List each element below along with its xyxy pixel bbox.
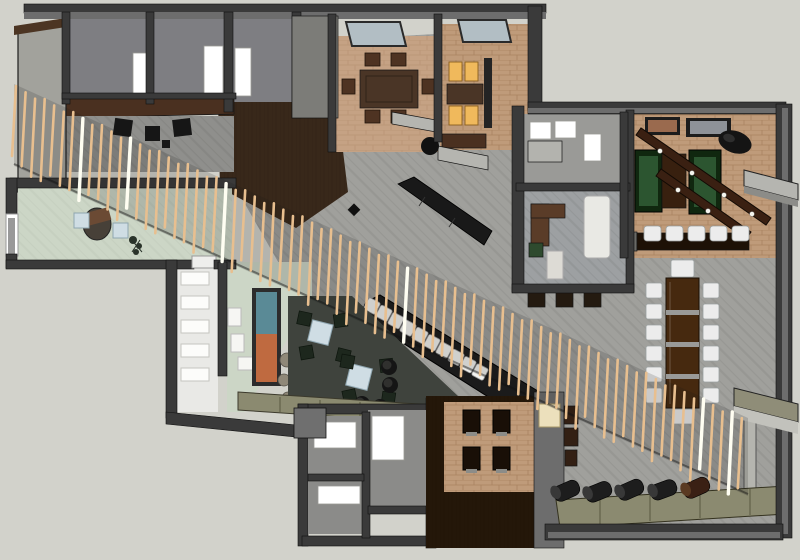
restroom-wall bbox=[308, 474, 364, 481]
communal-chair bbox=[646, 283, 662, 298]
white-table bbox=[547, 251, 563, 279]
blue-table bbox=[113, 223, 128, 238]
serving-band bbox=[442, 134, 486, 148]
communal-chair bbox=[646, 325, 662, 340]
wall bbox=[528, 6, 542, 110]
wall bbox=[328, 14, 336, 152]
wall bbox=[218, 262, 227, 376]
small-table bbox=[162, 140, 170, 148]
artwork-top bbox=[256, 292, 277, 334]
entry-door-leaf bbox=[8, 218, 15, 254]
floorplan-screenshot bbox=[0, 0, 800, 560]
stair-corridor bbox=[177, 266, 218, 412]
lounge-table bbox=[308, 320, 333, 345]
fixture bbox=[372, 416, 404, 460]
stool bbox=[556, 292, 573, 307]
wall bbox=[512, 284, 634, 293]
wall-face bbox=[548, 532, 780, 538]
booth-divider bbox=[484, 58, 492, 128]
wall bbox=[512, 106, 524, 292]
brown-sofa bbox=[531, 204, 565, 218]
door-opening bbox=[192, 256, 216, 268]
back-room-floor bbox=[68, 16, 298, 102]
picture-art bbox=[690, 121, 727, 134]
wall-face bbox=[782, 108, 788, 534]
wall bbox=[146, 12, 154, 104]
communal-chair bbox=[703, 283, 719, 298]
cabinet bbox=[530, 122, 551, 139]
stool bbox=[172, 118, 192, 137]
skylight bbox=[346, 22, 406, 46]
l-counter bbox=[528, 141, 562, 162]
private-dining-room bbox=[330, 22, 438, 152]
wall bbox=[434, 14, 442, 142]
communal-chair bbox=[703, 304, 719, 319]
communal-chair bbox=[703, 346, 719, 361]
bar-stools bbox=[644, 226, 749, 241]
communal-chair bbox=[646, 346, 662, 361]
restroom-wall bbox=[368, 506, 426, 514]
wall-top bbox=[24, 4, 546, 13]
communal-chair bbox=[646, 304, 662, 319]
door-opening bbox=[235, 48, 251, 96]
communal-chair bbox=[703, 325, 719, 340]
picture-art bbox=[648, 120, 677, 132]
floorplan-render bbox=[0, 0, 800, 560]
wall bbox=[516, 183, 630, 191]
table-band bbox=[666, 374, 699, 379]
skylight bbox=[458, 20, 511, 42]
artwork-bottom bbox=[256, 334, 277, 382]
cabinet bbox=[555, 121, 576, 138]
table-band bbox=[666, 342, 699, 347]
stool bbox=[584, 292, 601, 307]
cabinet bbox=[584, 134, 601, 161]
green-chair bbox=[529, 243, 543, 257]
wall-junction bbox=[294, 408, 326, 438]
wall bbox=[166, 260, 177, 418]
wall bbox=[62, 12, 70, 104]
stool bbox=[145, 126, 160, 141]
white-sofa bbox=[584, 196, 610, 258]
wall bbox=[620, 112, 628, 258]
communal-chair bbox=[703, 367, 719, 382]
booth-table bbox=[447, 84, 483, 104]
door-opening bbox=[204, 46, 223, 94]
wall bbox=[62, 93, 236, 99]
blue-table bbox=[74, 213, 89, 228]
wall-top-face bbox=[24, 12, 546, 19]
wall-face bbox=[528, 108, 786, 113]
wall bbox=[6, 178, 17, 216]
stool bbox=[528, 292, 545, 307]
fixture bbox=[318, 486, 360, 504]
shuffleboard-felt bbox=[639, 156, 658, 206]
table-band bbox=[666, 310, 699, 315]
service-room bbox=[524, 114, 628, 186]
head-chair bbox=[671, 260, 694, 277]
